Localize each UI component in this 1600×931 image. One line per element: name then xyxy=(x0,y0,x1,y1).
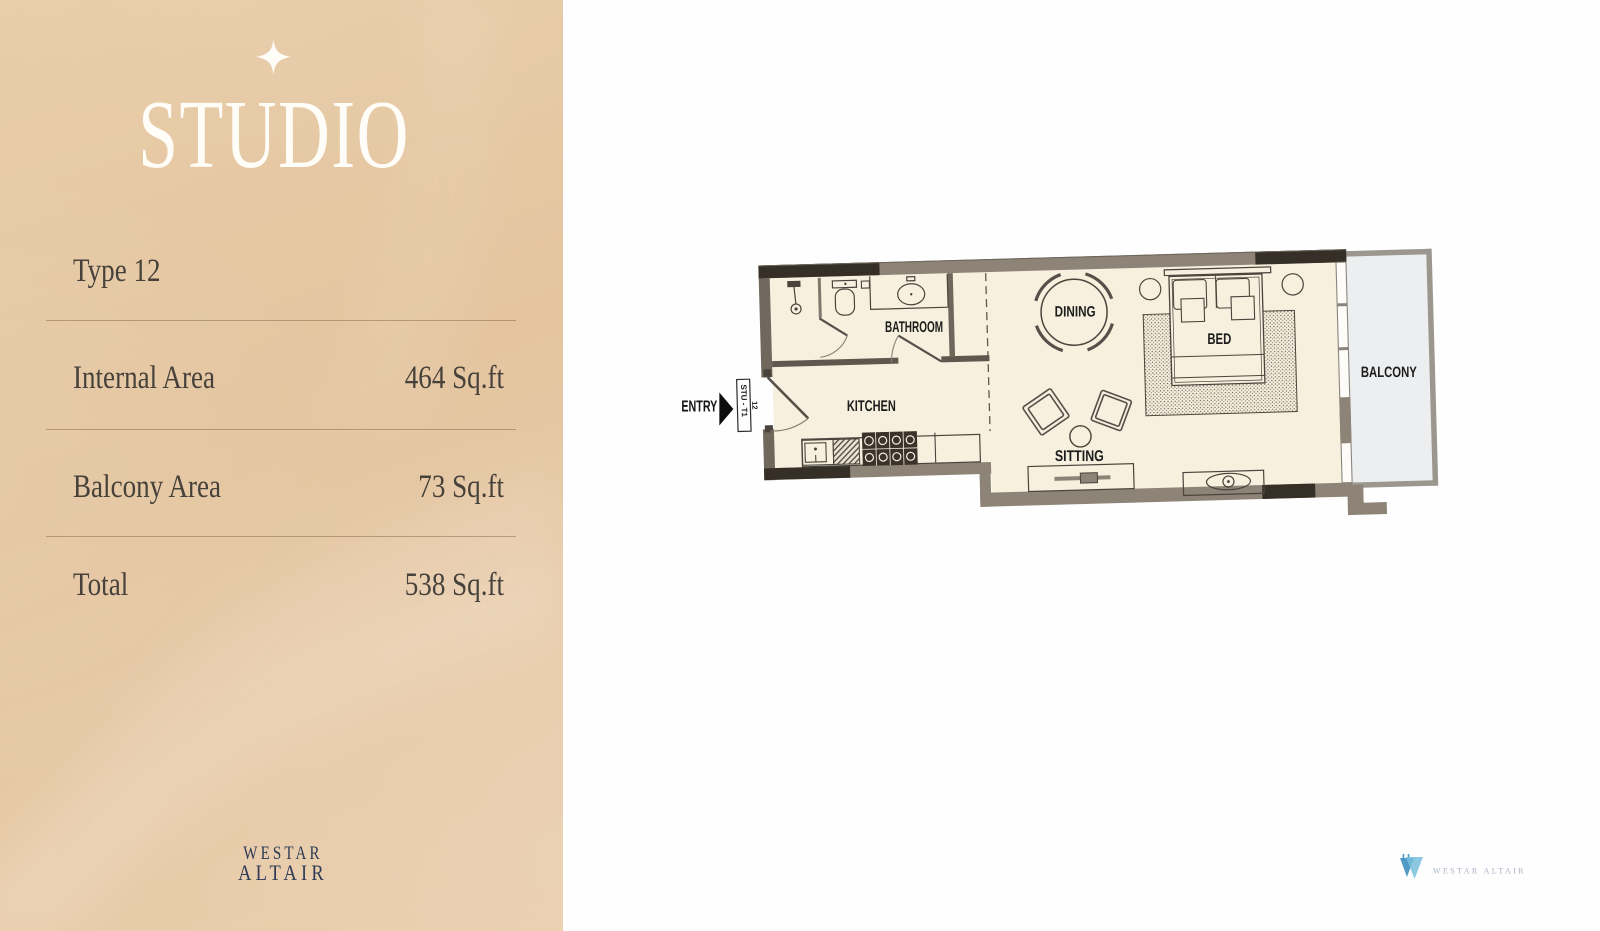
svg-text:STU - T1: STU - T1 xyxy=(739,384,749,417)
svg-text:WESTAR ALTAIR: WESTAR ALTAIR xyxy=(1433,867,1526,876)
svg-text:ENTRY: ENTRY xyxy=(681,399,717,416)
svg-text:12: 12 xyxy=(750,401,759,410)
svg-text:KITCHEN: KITCHEN xyxy=(847,398,896,415)
svg-text:BALCONY: BALCONY xyxy=(1361,364,1417,381)
svg-text:SITTING: SITTING xyxy=(1055,448,1104,465)
svg-text:BATHROOM: BATHROOM xyxy=(885,319,943,336)
svg-text:DINING: DINING xyxy=(1055,304,1096,321)
svg-text:BED: BED xyxy=(1207,331,1231,348)
